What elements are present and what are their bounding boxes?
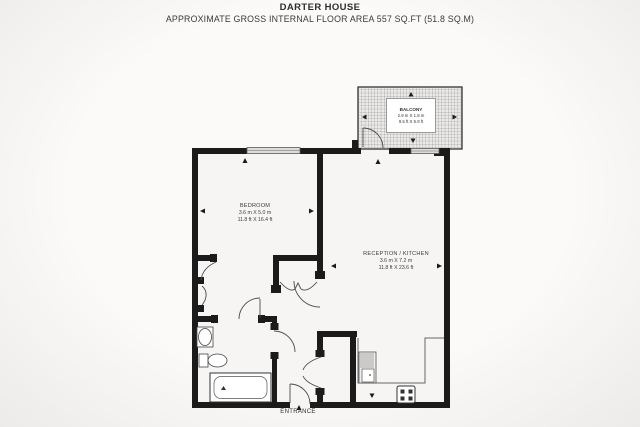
fridge-icon	[359, 352, 376, 383]
bathtub-icon	[210, 373, 271, 402]
reception-window	[411, 149, 439, 154]
bedroom-name: BEDROOM	[195, 203, 315, 210]
hob-icon	[397, 386, 415, 403]
reception-dim-imperial: 11.8 ft X 23.6 ft	[336, 265, 456, 272]
bedroom-window	[247, 148, 300, 154]
bedroom-label: BEDROOM 3.6 m X 5.0 m 11.8 ft X 16.4 ft	[195, 203, 315, 223]
sink-icon	[197, 327, 213, 347]
reception-name: RECEPTION / KITCHEN	[336, 251, 456, 258]
entrance-label: ENTRANCE	[258, 409, 338, 415]
bedroom-dim-imperial: 11.8 ft X 16.4 ft	[195, 217, 315, 224]
floorplan-drawing	[0, 0, 640, 427]
reception-label: RECEPTION / KITCHEN 3.6 m X 7.2 m 11.8 f…	[336, 251, 456, 271]
floorplan-page: DARTER HOUSE APPROXIMATE GROSS INTERNAL …	[0, 0, 640, 427]
balcony-label: BALCONY 2.9 m X 1.8 m 9.5 ft X 5.9 ft	[386, 98, 436, 133]
toilet-icon	[199, 354, 227, 367]
balcony-dim-imperial: 9.5 ft X 5.9 ft	[387, 119, 435, 125]
